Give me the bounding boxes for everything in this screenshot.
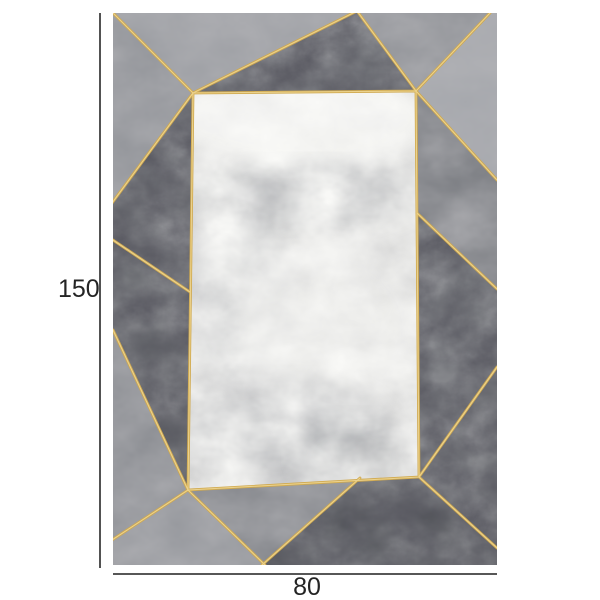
product-image: 150 80 — [0, 0, 600, 600]
rug-panels — [110, 11, 497, 565]
width-dimension-label: 80 — [283, 575, 331, 600]
height-dimension-label: 150 — [58, 277, 96, 302]
